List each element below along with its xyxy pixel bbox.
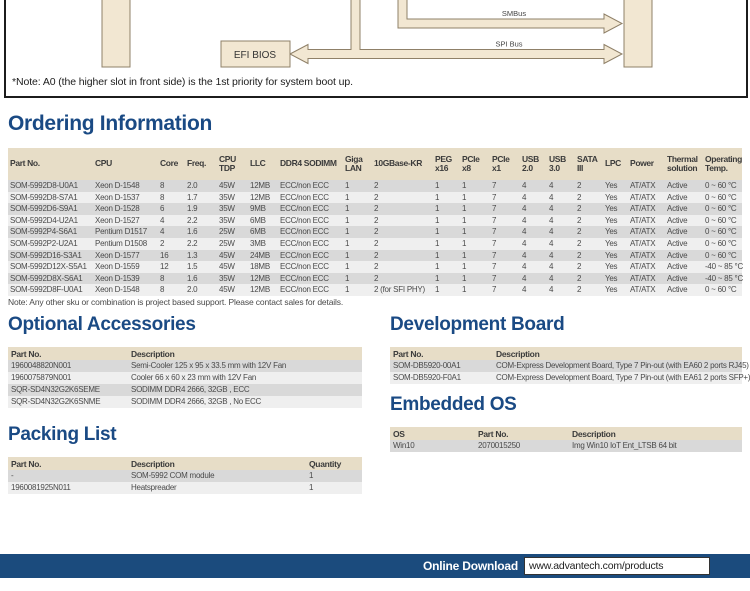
diagram-note: *Note: A0 (the higher slot in front side…	[12, 76, 353, 88]
table-cell: Active	[665, 192, 703, 204]
table-cell: 1	[433, 250, 460, 262]
download-url[interactable]: www.advantech.com/products	[524, 557, 710, 575]
table-cell: 0 ~ 60 °C	[703, 226, 742, 238]
table-cell: 1960081925N011	[8, 482, 128, 494]
ordering-header-row: Part No.CPUCoreFreq.CPU TDPLLCDDR4 SODIM…	[8, 148, 742, 180]
table-cell: SOM-5992 COM module	[128, 470, 306, 482]
table-cell: Active	[665, 226, 703, 238]
table-cell: -40 ~ 85 °C	[703, 261, 742, 273]
block-diagram: EFI BIOS SMBus SPI Bus *Note: A0 (the hi…	[4, 0, 748, 98]
table-cell: Heatspreader	[128, 482, 306, 494]
smbus-label: SMBus	[502, 9, 526, 18]
table-cell: Xeon D-1528	[93, 203, 158, 215]
table-cell: 0 ~ 60 °C	[703, 203, 742, 215]
table-cell: 45W	[217, 250, 248, 262]
table-row: SOM-5992D4-U2A1Xeon D-152742.235W6MBECC/…	[8, 215, 742, 227]
table-cell: 2	[575, 192, 603, 204]
table-cell: 1	[460, 250, 490, 262]
table-cell: 2	[575, 273, 603, 285]
table-cell: Active	[665, 215, 703, 227]
table-cell: 7	[490, 273, 520, 285]
datasheet-page: EFI BIOS SMBus SPI Bus *Note: A0 (the hi…	[0, 0, 750, 591]
table-cell: 4	[158, 226, 185, 238]
table-cell: Active	[665, 273, 703, 285]
table-cell: 2	[372, 215, 433, 227]
table-cell: AT/ATX	[628, 203, 665, 215]
table-cell: 1.7	[185, 192, 217, 204]
column-header: PEG x16	[433, 148, 460, 180]
table-cell: 2	[372, 238, 433, 250]
table-cell: 12MB	[248, 180, 278, 192]
table-cell: 4	[547, 192, 575, 204]
table-cell: 2	[372, 273, 433, 285]
table-cell: 0 ~ 60 °C	[703, 284, 742, 296]
column-header: Description	[493, 347, 742, 360]
table-row: 1960081925N011Heatspreader1	[8, 482, 362, 494]
table-cell: 12MB	[248, 284, 278, 296]
table-cell: 12MB	[248, 192, 278, 204]
table-cell: 2.0	[185, 180, 217, 192]
table-cell: 4	[520, 273, 547, 285]
table-cell: 8	[158, 273, 185, 285]
table-cell: 1	[433, 284, 460, 296]
table-cell: AT/ATX	[628, 215, 665, 227]
efi-bios-label: EFI BIOS	[234, 50, 277, 61]
table-cell: Xeon D-1577	[93, 250, 158, 262]
column-header: OS	[390, 427, 475, 440]
table-cell: 1	[343, 250, 372, 262]
table-cell: SODIMM DDR4 2666, 32GB , No ECC	[128, 396, 362, 408]
db-header-row: Part No.Description	[390, 347, 742, 360]
table-cell: 4	[547, 180, 575, 192]
table-cell: 1	[433, 203, 460, 215]
table-cell: SOM-5992P2-U2A1	[8, 238, 93, 250]
table-cell: 45W	[217, 180, 248, 192]
table-cell: Active	[665, 203, 703, 215]
table-cell: 7	[490, 284, 520, 296]
table-cell: AT/ATX	[628, 238, 665, 250]
table-cell: 2	[372, 261, 433, 273]
table-cell: 4	[158, 215, 185, 227]
table-cell: 2	[575, 238, 603, 250]
column-header: Freq.	[185, 148, 217, 180]
table-row: Win102070015250Img Win10 IoT Ent_LTSB 64…	[390, 440, 742, 452]
table-cell: Xeon D-1527	[93, 215, 158, 227]
table-cell: 4	[547, 250, 575, 262]
table-cell: 1	[460, 261, 490, 273]
table-cell: 1	[460, 226, 490, 238]
table-row: SOM-5992D8X-S6A1Xeon D-153981.635W12MBEC…	[8, 273, 742, 285]
embedded-os-title: Embedded OS	[390, 394, 517, 416]
table-cell: SOM-5992D6-S9A1	[8, 203, 93, 215]
table-cell: 7	[490, 215, 520, 227]
table-cell: Yes	[603, 261, 628, 273]
table-cell: 1	[460, 180, 490, 192]
table-cell: Img Win10 IoT Ent_LTSB 64 bit	[569, 440, 742, 452]
table-cell: 1	[460, 273, 490, 285]
table-row: SOM-DB5920-00A1COM-Express Development B…	[390, 360, 742, 372]
table-cell: SQR-SD4N32G2K6SNME	[8, 396, 128, 408]
table-cell: COM-Express Development Board, Type 7 Pi…	[493, 360, 742, 372]
optional-accessories-table: Part No.Description 1960048820N001Semi-C…	[8, 347, 362, 408]
table-cell: SOM-DB5920-00A1	[390, 360, 493, 372]
table-cell: 12	[158, 261, 185, 273]
table-cell: ECC/non ECC	[278, 203, 343, 215]
table-cell: 1	[343, 284, 372, 296]
table-row: SOM-5992D16-S3A1Xeon D-1577161.345W24MBE…	[8, 250, 742, 262]
table-cell: 2	[372, 250, 433, 262]
column-header: USB 2.0	[520, 148, 547, 180]
oa-header-row: Part No.Description	[8, 347, 362, 360]
table-cell: 2.2	[185, 238, 217, 250]
table-cell: 35W	[217, 192, 248, 204]
table-cell: 4	[520, 226, 547, 238]
table-cell: Active	[665, 261, 703, 273]
table-cell: 2	[575, 284, 603, 296]
column-header: Part No.	[8, 347, 128, 360]
column-header: Part No.	[475, 427, 569, 440]
table-row: SOM-5992D8-S7A1Xeon D-153781.735W12MBECC…	[8, 192, 742, 204]
table-cell: 8	[158, 180, 185, 192]
column-header: Quantity	[306, 457, 362, 470]
table-cell: SOM-5992D8F-U0A1	[8, 284, 93, 296]
embedded-os-table: OSPart No.Description Win102070015250Img…	[390, 427, 742, 452]
table-cell: 2	[575, 250, 603, 262]
table-cell: 4	[520, 215, 547, 227]
column-header: Description	[128, 457, 306, 470]
table-cell: SOM-DB5920-F0A1	[390, 372, 493, 384]
column-header: Description	[569, 427, 742, 440]
column-header: USB 3.0	[547, 148, 575, 180]
table-cell: 1.6	[185, 273, 217, 285]
table-cell: 2 (for SFI PHY)	[372, 284, 433, 296]
table-cell: Pentium D1517	[93, 226, 158, 238]
table-cell: Semi-Cooler 125 x 95 x 33.5 mm with 12V …	[128, 360, 362, 372]
table-cell: Xeon D-1539	[93, 273, 158, 285]
table-cell: 4	[520, 250, 547, 262]
table-cell: 2	[372, 192, 433, 204]
table-cell: 4	[520, 203, 547, 215]
table-cell: 4	[547, 215, 575, 227]
table-cell: Yes	[603, 192, 628, 204]
table-cell: Yes	[603, 215, 628, 227]
table-cell: 1960075879N001	[8, 372, 128, 384]
table-cell: SOM-5992D4-U2A1	[8, 215, 93, 227]
table-cell: 9MB	[248, 203, 278, 215]
block-diagram-graphics: EFI BIOS SMBus SPI Bus	[6, 0, 746, 75]
column-header: LLC	[248, 148, 278, 180]
table-cell: ECC/non ECC	[278, 250, 343, 262]
development-board-table: Part No.Description SOM-DB5920-00A1COM-E…	[390, 347, 742, 384]
table-cell: Yes	[603, 203, 628, 215]
table-cell: 1	[433, 273, 460, 285]
table-cell: 7	[490, 203, 520, 215]
table-cell: 2	[158, 238, 185, 250]
table-cell: 2.2	[185, 215, 217, 227]
table-row: 1960048820N001Semi-Cooler 125 x 95 x 33.…	[8, 360, 362, 372]
table-cell: Yes	[603, 273, 628, 285]
table-cell: 1	[433, 215, 460, 227]
table-cell: Cooler 66 x 60 x 23 mm with 12V Fan	[128, 372, 362, 384]
table-cell: 1.3	[185, 250, 217, 262]
table-cell: 1	[433, 261, 460, 273]
table-cell: SOM-5992D8-U0A1	[8, 180, 93, 192]
column-header: LPC	[603, 148, 628, 180]
table-cell: 1.6	[185, 226, 217, 238]
table-cell: Xeon D-1559	[93, 261, 158, 273]
table-cell: SOM-5992D8-S7A1	[8, 192, 93, 204]
table-cell: -40 ~ 85 °C	[703, 273, 742, 285]
table-cell: 4	[547, 284, 575, 296]
packing-list-table: Part No.DescriptionQuantity -SOM-5992 CO…	[8, 457, 362, 494]
table-cell: ECC/non ECC	[278, 284, 343, 296]
table-cell: Yes	[603, 238, 628, 250]
table-cell: AT/ATX	[628, 192, 665, 204]
table-cell: 1	[433, 192, 460, 204]
table-cell: ECC/non ECC	[278, 238, 343, 250]
table-cell: ECC/non ECC	[278, 192, 343, 204]
table-row: SOM-5992D12X-S5A1Xeon D-1559121.545W18MB…	[8, 261, 742, 273]
table-cell: Yes	[603, 226, 628, 238]
table-row: -SOM-5992 COM module1	[8, 470, 362, 482]
optional-accessories-title: Optional Accessories	[8, 314, 196, 336]
table-cell: 1	[343, 226, 372, 238]
spi-bus-label: SPI Bus	[495, 40, 522, 49]
table-cell: 1	[460, 203, 490, 215]
table-cell: 7	[490, 192, 520, 204]
table-row: SOM-5992D8-U0A1Xeon D-154882.045W12MBECC…	[8, 180, 742, 192]
table-cell: 1.9	[185, 203, 217, 215]
table-cell: -	[8, 470, 128, 482]
packing-list-title: Packing List	[8, 424, 116, 446]
spi-bus-arrow	[290, 0, 622, 64]
table-row: SQR-SD4N32G2K6SNMESODIMM DDR4 2666, 32GB…	[8, 396, 362, 408]
column-header: 10GBase-KR	[372, 148, 433, 180]
table-cell: 0 ~ 60 °C	[703, 215, 742, 227]
table-cell: 1	[433, 238, 460, 250]
table-cell: 1	[433, 226, 460, 238]
table-cell: 2	[575, 180, 603, 192]
table-cell: Win10	[390, 440, 475, 452]
table-cell: 1	[306, 470, 362, 482]
table-cell: Active	[665, 250, 703, 262]
table-cell: AT/ATX	[628, 273, 665, 285]
table-cell: 7	[490, 261, 520, 273]
table-cell: Active	[665, 238, 703, 250]
table-cell: 1	[433, 180, 460, 192]
column-header: Part No.	[8, 457, 128, 470]
column-header: Thermal solution	[665, 148, 703, 180]
table-cell: 4	[547, 261, 575, 273]
table-cell: Pentium D1508	[93, 238, 158, 250]
table-cell: 1	[460, 192, 490, 204]
table-cell: 6	[158, 203, 185, 215]
table-cell: 8	[158, 192, 185, 204]
table-cell: 45W	[217, 261, 248, 273]
table-cell: 1960048820N001	[8, 360, 128, 372]
column-header: Part No.	[8, 148, 93, 180]
table-cell: Yes	[603, 180, 628, 192]
development-board-title: Development Board	[390, 314, 564, 336]
table-cell: ECC/non ECC	[278, 273, 343, 285]
column-header: PCIe x8	[460, 148, 490, 180]
table-cell: 2	[575, 215, 603, 227]
table-cell: 12MB	[248, 273, 278, 285]
ordering-information-title: Ordering Information	[8, 112, 212, 136]
table-cell: 1	[343, 203, 372, 215]
table-cell: 6MB	[248, 215, 278, 227]
column-header: CPU TDP	[217, 148, 248, 180]
table-cell: 4	[547, 203, 575, 215]
right-connector-bar	[624, 0, 652, 67]
column-header: Giga LAN	[343, 148, 372, 180]
table-cell: 0 ~ 60 °C	[703, 180, 742, 192]
table-cell: 2	[575, 261, 603, 273]
column-header: Operating Temp.	[703, 148, 742, 180]
table-cell: 0 ~ 60 °C	[703, 192, 742, 204]
table-row: SQR-SD4N32G2K6SEMESODIMM DDR4 2666, 32GB…	[8, 384, 362, 396]
table-cell: 2.0	[185, 284, 217, 296]
table-cell: AT/ATX	[628, 261, 665, 273]
table-cell: 7	[490, 238, 520, 250]
table-cell: AT/ATX	[628, 226, 665, 238]
table-cell: 4	[547, 273, 575, 285]
table-cell: 2	[372, 180, 433, 192]
table-cell: 4	[520, 284, 547, 296]
table-cell: 1	[306, 482, 362, 494]
table-cell: 35W	[217, 215, 248, 227]
column-header: DDR4 SODIMM	[278, 148, 343, 180]
table-row: SOM-5992D6-S9A1Xeon D-152861.935W9MBECC/…	[8, 203, 742, 215]
online-download-bar: Online Download www.advantech.com/produc…	[0, 554, 750, 578]
table-cell: SODIMM DDR4 2666, 32GB , ECC	[128, 384, 362, 396]
eos-header-row: OSPart No.Description	[390, 427, 742, 440]
table-cell: ECC/non ECC	[278, 261, 343, 273]
table-cell: 1	[343, 273, 372, 285]
left-connector-bar	[102, 0, 130, 67]
table-cell: 2	[372, 226, 433, 238]
table-cell: 2	[575, 226, 603, 238]
column-header: Part No.	[390, 347, 493, 360]
table-cell: 45W	[217, 284, 248, 296]
table-cell: 2070015250	[475, 440, 569, 452]
column-header: CPU	[93, 148, 158, 180]
table-cell: 25W	[217, 226, 248, 238]
table-cell: Xeon D-1548	[93, 284, 158, 296]
table-cell: AT/ATX	[628, 284, 665, 296]
table-cell: 18MB	[248, 261, 278, 273]
table-cell: 2	[372, 203, 433, 215]
table-cell: 4	[520, 192, 547, 204]
table-cell: ECC/non ECC	[278, 180, 343, 192]
table-cell: 25W	[217, 238, 248, 250]
table-cell: 35W	[217, 273, 248, 285]
column-header: Description	[128, 347, 362, 360]
table-cell: 1	[460, 284, 490, 296]
table-cell: 7	[490, 180, 520, 192]
table-cell: Yes	[603, 250, 628, 262]
table-cell: Xeon D-1537	[93, 192, 158, 204]
table-cell: 1.5	[185, 261, 217, 273]
table-cell: 3MB	[248, 238, 278, 250]
table-cell: 1	[343, 192, 372, 204]
table-cell: AT/ATX	[628, 180, 665, 192]
table-cell: 1	[343, 261, 372, 273]
table-cell: SOM-5992D8X-S6A1	[8, 273, 93, 285]
table-cell: 1	[460, 238, 490, 250]
table-cell: 1	[343, 180, 372, 192]
table-cell: Yes	[603, 284, 628, 296]
column-header: SATA III	[575, 148, 603, 180]
table-cell: 7	[490, 226, 520, 238]
table-row: SOM-DB5920-F0A1COM-Express Development B…	[390, 372, 742, 384]
table-cell: 6MB	[248, 226, 278, 238]
column-header: Core	[158, 148, 185, 180]
table-cell: 0 ~ 60 °C	[703, 250, 742, 262]
table-cell: SOM-5992P4-S6A1	[8, 226, 93, 238]
table-cell: SOM-5992D16-S3A1	[8, 250, 93, 262]
table-row: SOM-5992P2-U2A1Pentium D150822.225W3MBEC…	[8, 238, 742, 250]
pl-header-row: Part No.DescriptionQuantity	[8, 457, 362, 470]
table-cell: COM-Express Development Board, Type 7 Pi…	[493, 372, 742, 384]
table-cell: 4	[520, 238, 547, 250]
table-cell: 1	[343, 238, 372, 250]
table-cell: 4	[547, 226, 575, 238]
table-cell: ECC/non ECC	[278, 215, 343, 227]
ordering-information-table: Part No.CPUCoreFreq.CPU TDPLLCDDR4 SODIM…	[8, 148, 742, 296]
table-cell: 24MB	[248, 250, 278, 262]
table-cell: AT/ATX	[628, 250, 665, 262]
ordering-note: Note: Any other sku or combination is pr…	[8, 297, 343, 307]
table-cell: 8	[158, 284, 185, 296]
column-header: PCIe x1	[490, 148, 520, 180]
table-cell: 4	[520, 261, 547, 273]
table-cell: Active	[665, 284, 703, 296]
table-row: SOM-5992D8F-U0A1Xeon D-154882.045W12MBEC…	[8, 284, 742, 296]
table-cell: 4	[547, 238, 575, 250]
table-cell: 35W	[217, 203, 248, 215]
table-cell: 4	[520, 180, 547, 192]
table-cell: Active	[665, 180, 703, 192]
table-cell: 2	[575, 203, 603, 215]
table-cell: ECC/non ECC	[278, 226, 343, 238]
column-header: Power	[628, 148, 665, 180]
table-cell: 0 ~ 60 °C	[703, 238, 742, 250]
table-cell: Xeon D-1548	[93, 180, 158, 192]
table-cell: 1	[460, 215, 490, 227]
table-cell: 7	[490, 250, 520, 262]
table-row: SOM-5992P4-S6A1Pentium D151741.625W6MBEC…	[8, 226, 742, 238]
online-download-label: Online Download	[423, 554, 518, 578]
table-cell: 16	[158, 250, 185, 262]
table-cell: SQR-SD4N32G2K6SEME	[8, 384, 128, 396]
table-cell: SOM-5992D12X-S5A1	[8, 261, 93, 273]
table-row: 1960075879N001Cooler 66 x 60 x 23 mm wit…	[8, 372, 362, 384]
table-cell: 1	[343, 215, 372, 227]
